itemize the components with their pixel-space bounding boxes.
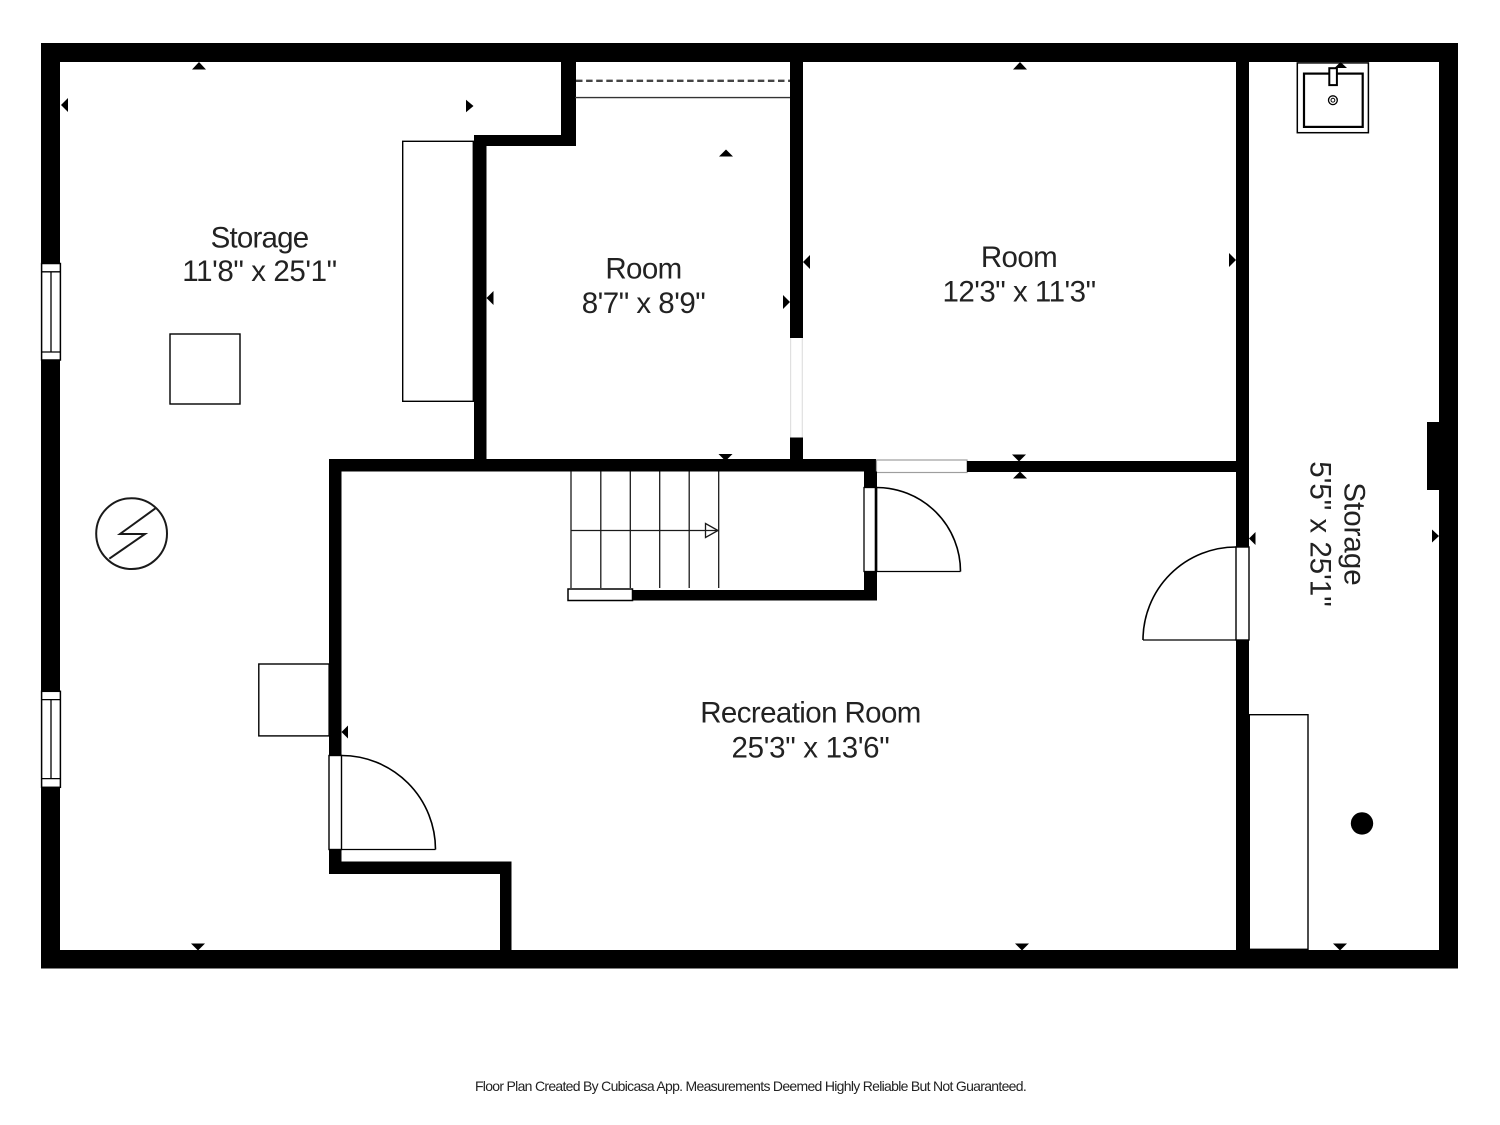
svg-text:12'3" x 11'3": 12'3" x 11'3" [942,276,1095,309]
svg-text:5'5" x 25'1": 5'5" x 25'1" [1304,461,1337,606]
svg-text:25'3" x 13'6": 25'3" x 13'6" [732,732,890,765]
svg-text:Storage: Storage [1338,482,1371,585]
svg-text:Floor Plan Created By Cubicasa: Floor Plan Created By Cubicasa App. Meas… [475,1078,1026,1094]
svg-text:Recreation Room: Recreation Room [700,697,921,730]
svg-text:Room: Room [981,241,1057,274]
svg-text:Storage: Storage [211,222,309,255]
svg-text:11'8" x 25'1": 11'8" x 25'1" [182,255,336,288]
svg-text:Room: Room [605,253,681,286]
svg-text:8'7" x 8'9": 8'7" x 8'9" [582,287,706,320]
